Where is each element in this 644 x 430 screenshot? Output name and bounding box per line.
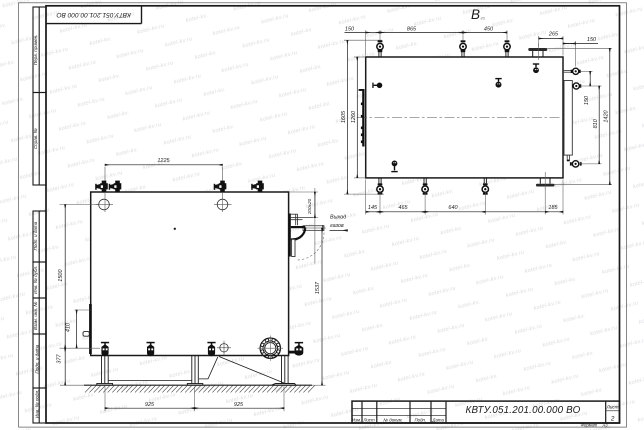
svg-text:925: 925 [234,402,244,408]
svg-text:Лист: Лист [606,405,619,410]
svg-text:Подп. и дата: Подп. и дата [35,344,40,373]
svg-text:145: 145 [368,205,378,211]
svg-text:200±20: 200±20 [307,198,312,215]
svg-text:640: 640 [448,205,458,211]
svg-text:150: 150 [345,26,355,32]
svg-text:1225: 1225 [157,158,170,164]
svg-text:КВТУ.051.201.00.000 ВО: КВТУ.051.201.00.000 ВО [465,405,580,416]
svg-text:1537: 1537 [315,281,321,294]
svg-text:Справ. №: Справ. № [33,128,38,149]
svg-text:810: 810 [593,118,599,128]
svg-text:Подп. и дата: Подп. и дата [33,221,38,250]
svg-text:925: 925 [145,402,155,408]
svg-text:Выход: Выход [330,215,346,221]
svg-text:185: 185 [548,205,558,211]
svg-text:го: го [481,16,486,21]
svg-text:1500: 1500 [58,269,64,282]
svg-text:Инв. № подл.: Инв. № подл. [35,390,40,419]
svg-text:1605: 1605 [341,110,347,123]
svg-text:150: 150 [584,95,590,105]
svg-text:Изм.: Изм. [352,417,361,422]
svg-text:газов: газов [330,223,344,229]
svg-text:450: 450 [484,26,494,32]
svg-text:865: 865 [407,26,417,32]
svg-text:1420: 1420 [603,109,609,122]
svg-text:А3: А3 [601,423,608,428]
svg-text:465: 465 [398,205,408,211]
svg-text:Формат: Формат [581,423,598,428]
svg-text:Дата: Дата [431,417,444,422]
svg-text:Взам. инв. №: Взам. инв. № [33,302,38,330]
svg-text:2: 2 [610,415,615,422]
svg-text:№ докум.: № докум. [383,417,402,422]
svg-text:Подп.: Подп. [414,417,426,422]
svg-text:150: 150 [587,37,597,43]
svg-text:КВТУ.051.201.00.000 ВО: КВТУ.051.201.00.000 ВО [56,11,130,18]
svg-text:Лист: Лист [362,417,375,422]
svg-text:410: 410 [65,322,71,332]
svg-text:В: В [471,7,480,22]
svg-text:Инв. № дубл.: Инв. № дубл. [33,266,38,294]
svg-text:Перв. примен.: Перв. примен. [33,35,38,66]
svg-text:265: 265 [548,32,559,38]
svg-text:1260: 1260 [351,110,357,123]
svg-text:377: 377 [57,353,63,363]
